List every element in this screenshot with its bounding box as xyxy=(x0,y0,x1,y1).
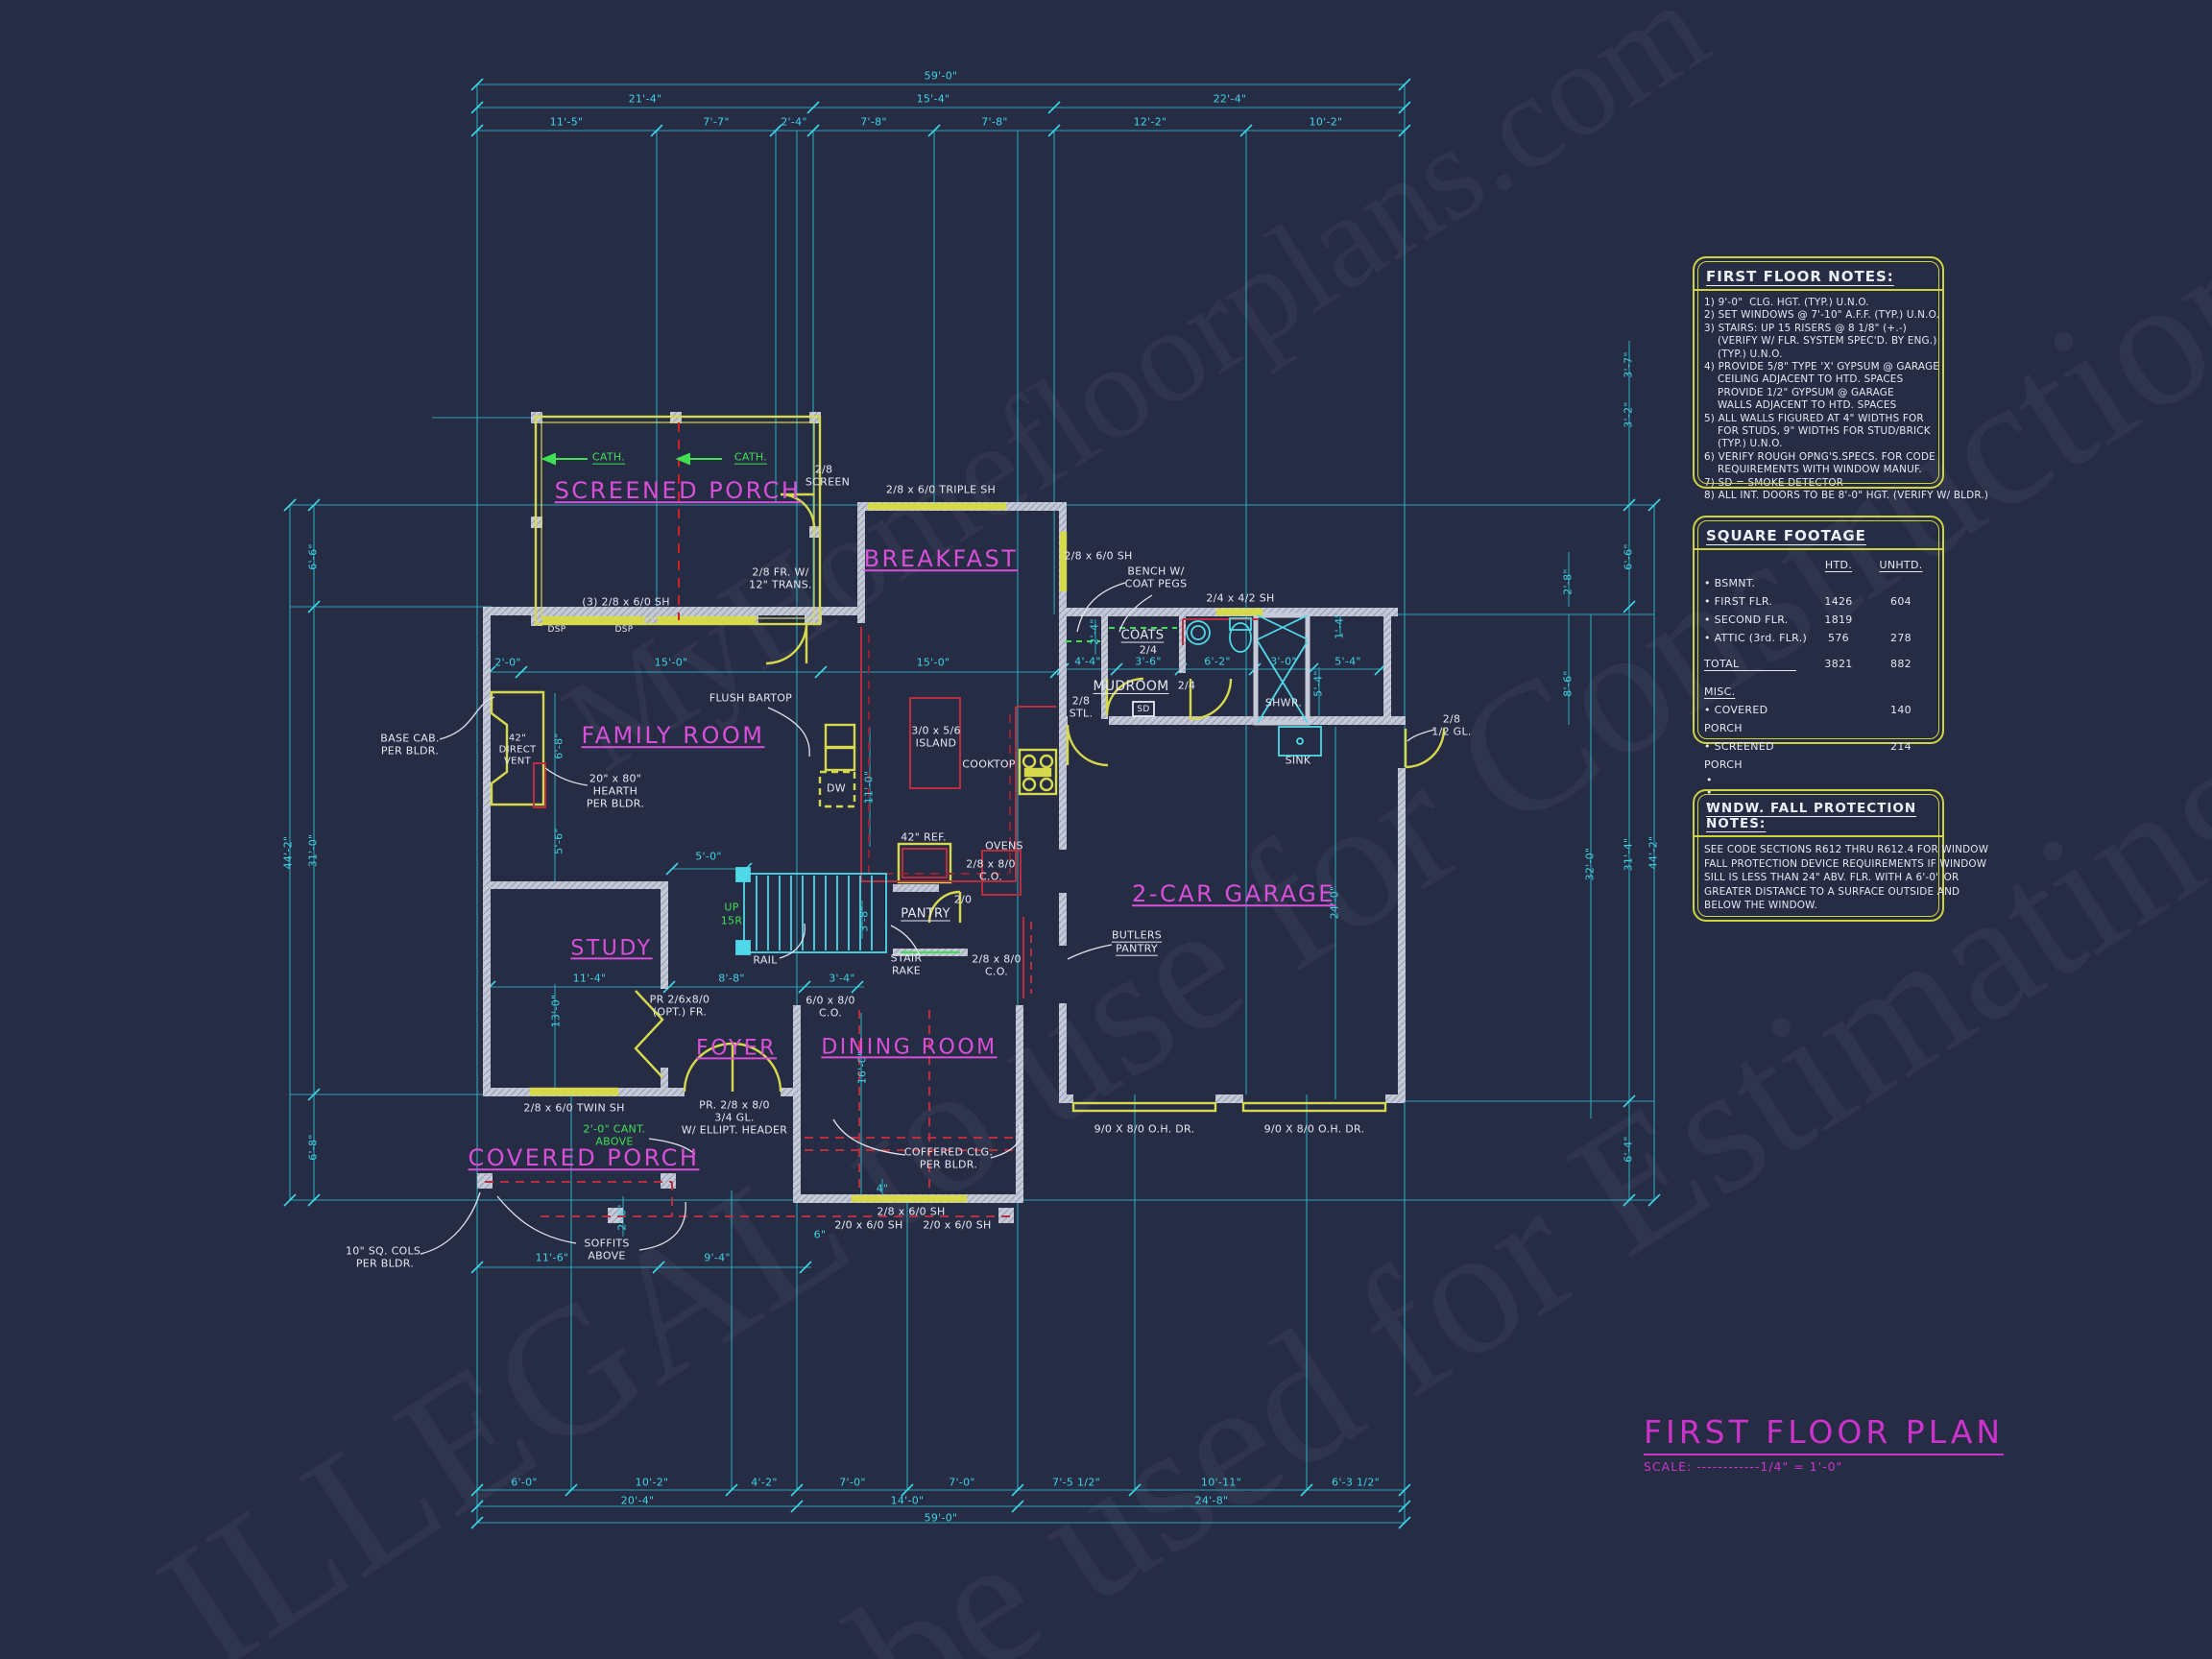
plan-label: 10'-2" xyxy=(636,1478,669,1490)
window-fall-protection-box: WNDW. FALL PROTECTION NOTES: SEE CODE SE… xyxy=(1693,789,1944,922)
sqft-row-name: • ATTIC (3rd. FLR.) xyxy=(1704,629,1808,647)
plan-label: 2/8 x 8/0 xyxy=(972,954,1022,967)
plan-label: 4'-2" xyxy=(751,1478,778,1490)
plan-label: 1/2 GL. xyxy=(1431,727,1471,739)
plan-label: 2'-0" xyxy=(494,658,521,670)
plan-label: 5'-4" xyxy=(1313,670,1326,697)
plan-label: 1'-4" xyxy=(1334,613,1347,639)
plan-label: STL. xyxy=(1070,709,1094,721)
plan-label: BENCH W/ xyxy=(1127,566,1184,579)
plan-label: 2/4 x 4/2 SH xyxy=(1206,593,1274,606)
plan-label: 15'-0" xyxy=(917,658,950,670)
sqft-row-name: • SCREENED PORCH xyxy=(1704,737,1808,774)
plan-label: 2/8 FR. W/ xyxy=(752,567,808,580)
plan-label: ABOVE xyxy=(588,1251,625,1263)
plan-label: 22'-4" xyxy=(1214,94,1247,107)
plan-label: 2'-4" xyxy=(781,117,807,130)
sqft-row-name: • BSMNT. xyxy=(1704,574,1808,592)
plan-label: 2/8 x 6/0 TRIPLE SH xyxy=(886,485,996,497)
room-label-breakfast: BREAKFAST xyxy=(864,546,1019,573)
plan-label: 4" xyxy=(877,1184,889,1196)
plan-label: CATH. xyxy=(734,452,767,465)
plan-label: 10" SQ. COLS. xyxy=(346,1246,424,1259)
plan-label: DW xyxy=(827,783,846,796)
plan-label: SHWR. xyxy=(1265,698,1302,710)
plan-label: VENT xyxy=(504,756,531,767)
sqft-row-unhtd: 214 xyxy=(1869,737,1933,774)
plan-label: 44'-2" xyxy=(283,836,296,870)
square-footage-box: SQUARE FOOTAGE HTD. UNHTD. • BSMNT. • FI… xyxy=(1693,516,1944,744)
plan-label: SOFFITS xyxy=(584,1238,629,1251)
plan-label: PR. 2/8 x 8/0 xyxy=(699,1100,770,1113)
plan-label: 6'-6" xyxy=(1623,543,1636,570)
plan-label: 6'-8" xyxy=(308,1134,321,1161)
plan-label: BASE CAB. xyxy=(380,733,439,746)
plan-label: 3'-7" xyxy=(1623,351,1636,378)
plan-label: 42" xyxy=(509,733,526,744)
plan-label: 6/0 x 8/0 xyxy=(805,996,855,1008)
plan-label: 2/0 x 6/0 SH xyxy=(834,1220,902,1233)
plan-label: MUDROOM xyxy=(1093,679,1168,694)
plan-label: 44'-2" xyxy=(1648,836,1661,870)
room-label-family-room: FAMILY ROOM xyxy=(582,723,765,750)
room-label-garage: 2-CAR GARAGE xyxy=(1132,881,1335,908)
plan-label: PER BLDR. xyxy=(587,799,644,811)
blueprint-canvas: MyHomefloorplans.com ILLEGAL to use for … xyxy=(0,0,2212,1659)
plan-label: 13'-0" xyxy=(551,995,564,1028)
plan-label: C.O. xyxy=(985,967,1008,979)
plan-label: 11'-5" xyxy=(550,117,584,130)
plan-label: PANTRY xyxy=(1116,944,1158,956)
plan-label: 11'-6" xyxy=(536,1253,569,1265)
sqft-col-unhtd: UNHTD. xyxy=(1869,556,1933,574)
first-floor-notes-title: FIRST FLOOR NOTES: xyxy=(1706,268,1931,285)
plan-label: (OPT.) FR. xyxy=(653,1007,707,1020)
plan-label: CATH. xyxy=(592,452,625,465)
plan-label: PR 2/6x8/0 xyxy=(650,995,710,1007)
first-floor-notes-box: FIRST FLOOR NOTES: 1) 9'-0" CLG. HGT. (T… xyxy=(1693,256,1944,489)
plan-label: 2/8 xyxy=(815,465,833,477)
plan-label: PER BLDR. xyxy=(381,746,439,758)
plan-label: COOKTOP xyxy=(962,759,1015,772)
sqft-row: • FIRST FLR. 1426 604 xyxy=(1704,592,1933,611)
plan-label: 12'-2" xyxy=(1134,117,1167,130)
plan-label: 12" TRANS. xyxy=(749,580,812,592)
sqft-misc-row: • COVERED PORCH 140 xyxy=(1704,701,1933,737)
room-label-dining: DINING ROOM xyxy=(821,1035,997,1059)
plan-label: 2/8 x 6/0 TWIN SH xyxy=(523,1103,624,1116)
plan-label: 2/8 x 6/0 SH xyxy=(877,1207,945,1219)
plan-label: SINK xyxy=(1286,756,1311,768)
plan-label: ISLAND xyxy=(916,738,957,751)
room-label-foyer: FOYER xyxy=(696,1036,777,1060)
window-fall-protection-title: WNDW. FALL PROTECTION NOTES: xyxy=(1706,801,1931,831)
plan-label: 59'-0" xyxy=(925,71,958,84)
room-label-study: STUDY xyxy=(570,936,652,960)
plan-label: 6'-3 1/2" xyxy=(1332,1478,1380,1490)
plan-label: 11'-4" xyxy=(573,974,607,986)
plan-label: 7'-5 1/2" xyxy=(1052,1478,1100,1490)
sqft-row: • BSMNT. xyxy=(1704,574,1933,592)
plan-label: 32'-0" xyxy=(1585,848,1598,881)
plan-label: 5'-0" xyxy=(695,852,722,864)
divider xyxy=(1695,289,1942,291)
plan-label: 2/8 x 6/0 SH xyxy=(1064,551,1132,564)
divider xyxy=(1695,835,1942,837)
sqft-row-name: • FIRST FLR. xyxy=(1704,592,1808,611)
plan-label: C.O. xyxy=(979,872,1002,884)
plan-label: 59'-0" xyxy=(925,1513,958,1526)
plan-label: 31'-4" xyxy=(1623,838,1636,872)
plan-label: 7'-8" xyxy=(860,117,887,130)
sqft-row-unhtd xyxy=(1869,574,1933,592)
sqft-total-label: TOTAL xyxy=(1704,658,1796,671)
room-label-screened-porch: SCREENED PORCH xyxy=(555,478,802,505)
plan-label: 20" x 80" xyxy=(589,774,641,786)
plan-label: 5'-6" xyxy=(554,828,566,854)
casework-lines xyxy=(485,422,1258,1216)
room-label-covered-porch: COVERED PORCH xyxy=(469,1145,700,1172)
plan-label: 2'-8" xyxy=(1563,568,1575,595)
sqft-header-row: HTD. UNHTD. xyxy=(1704,556,1933,574)
plan-label: W/ ELLIPT. HEADER xyxy=(682,1125,787,1138)
sqft-total-row: TOTAL 3821 882 xyxy=(1704,655,1933,673)
plan-label: 6" xyxy=(814,1230,827,1242)
plan-label: 14'-0" xyxy=(891,1496,925,1508)
plan-label: 2/0 xyxy=(954,895,973,907)
plan-label: DSP xyxy=(615,625,634,635)
plan-label: C.O. xyxy=(819,1008,842,1021)
plan-label: PER BLDR. xyxy=(356,1259,414,1271)
plan-label: 9/0 X 8/0 O.H. DR. xyxy=(1264,1124,1365,1137)
plan-label: 10'-11" xyxy=(1201,1478,1241,1490)
plan-label: 15'-4" xyxy=(917,94,950,107)
plan-label: OVENS xyxy=(985,841,1023,854)
plan-label: DIRECT xyxy=(499,744,537,756)
sqft-row-htd: 1426 xyxy=(1808,592,1869,611)
sqft-row-unhtd: 604 xyxy=(1869,592,1933,611)
plan-label: RAKE xyxy=(892,966,921,978)
plan-label: 24'-8" xyxy=(1195,1496,1229,1508)
sqft-misc-row: • SCREENED PORCH 214 xyxy=(1704,737,1933,774)
plan-label: 11'-0" xyxy=(864,771,877,805)
plan-label: SD xyxy=(1137,705,1149,714)
plan-label: 5'-4" xyxy=(1334,657,1361,669)
plan-label: DSP xyxy=(548,625,566,635)
plan-label: BUTLERS xyxy=(1112,930,1162,943)
sqft-total-htd: 3821 xyxy=(1808,655,1869,673)
plan-label: 2/8 x 8/0 xyxy=(966,859,1016,872)
plan-label: HEARTH xyxy=(593,786,637,799)
first-floor-notes-body: 1) 9'-0" CLG. HGT. (TYP.) U.N.O. 2) SET … xyxy=(1704,297,1933,503)
drawing-title: FIRST FLOOR PLAN xyxy=(1644,1413,2004,1455)
plan-label: 3'-2" xyxy=(1623,401,1636,428)
sqft-row-htd: 576 xyxy=(1808,629,1869,647)
plan-label: 10'-2" xyxy=(1310,117,1343,130)
plan-label: 2'-0" CANT. xyxy=(583,1124,645,1137)
plan-label: 3/4 GL. xyxy=(714,1113,754,1125)
divider xyxy=(1695,548,1942,550)
plan-label: STAIR xyxy=(891,953,923,966)
plan-label: 9'-4" xyxy=(704,1253,731,1265)
plan-label: 6'-8" xyxy=(554,733,566,759)
plan-label: 2/8 xyxy=(1443,714,1461,727)
plan-label: 2'-4" xyxy=(1090,618,1102,645)
plan-label: 4'-4" xyxy=(1074,657,1101,669)
plan-label: 3'-4" xyxy=(829,974,855,986)
plan-label: (3) 2/8 x 6/0 SH xyxy=(582,597,670,610)
plan-label: 7'-0" xyxy=(949,1478,975,1490)
plan-label: 2'-0" xyxy=(617,1204,630,1231)
plan-label: PANTRY xyxy=(901,908,950,923)
plan-label: 2/4 xyxy=(1178,681,1196,693)
sqft-row: • SECOND FLR. 1819 xyxy=(1704,611,1933,629)
sqft-row-name: • SECOND FLR. xyxy=(1704,611,1808,629)
square-footage-title: SQUARE FOOTAGE xyxy=(1706,527,1931,544)
plan-label: RAIL xyxy=(753,955,777,968)
plan-label: 7'-8" xyxy=(981,117,1008,130)
plan-label: 6'-2" xyxy=(1204,657,1231,669)
plan-label: 15R xyxy=(721,916,743,928)
sqft-row-unhtd xyxy=(1869,611,1933,629)
sqft-row-unhtd: 278 xyxy=(1869,629,1933,647)
plan-label: 7'-7" xyxy=(703,117,730,130)
plan-label: PER BLDR. xyxy=(920,1160,977,1172)
plan-label: 9/0 X 8/0 O.H. DR. xyxy=(1094,1124,1195,1137)
window-fall-protection-body: SEE CODE SECTIONS R612 THRU R612.4 FOR W… xyxy=(1704,843,1933,913)
sqft-row: • ATTIC (3rd. FLR.) 576 278 xyxy=(1704,629,1933,647)
title-block: FIRST FLOOR PLAN SCALE: ------------1/4"… xyxy=(1644,1413,2004,1474)
plan-label: 20'-4" xyxy=(621,1496,655,1508)
plan-label: 2/8 xyxy=(1072,696,1091,709)
plan-label: 3'-8" xyxy=(859,905,872,932)
sqft-misc-label: MISC. xyxy=(1704,683,1933,701)
plan-label: FLUSH BARTOP xyxy=(709,693,792,706)
plan-label: 42" REF. xyxy=(901,832,947,845)
plan-label: 31'-0" xyxy=(308,834,321,868)
plan-label: 6'-4" xyxy=(1623,1136,1636,1163)
plan-label: 2/0 x 6/0 SH xyxy=(923,1220,991,1233)
plan-label: UP xyxy=(724,902,738,915)
plan-label: 15'-0" xyxy=(655,658,688,670)
plan-label: 24'-0" xyxy=(1330,886,1342,920)
sqft-col-htd: HTD. xyxy=(1808,556,1869,574)
plan-label: COAT PEGS xyxy=(1125,579,1188,591)
plan-label: COATS xyxy=(1121,630,1165,644)
plan-label: 6'-0" xyxy=(511,1478,538,1490)
plan-label: 8'-8" xyxy=(718,974,745,986)
plan-label: SCREEN xyxy=(805,477,850,490)
plan-label: 6'-6" xyxy=(308,543,321,570)
sqft-row-htd xyxy=(1808,574,1869,592)
sqft-row-unhtd: 140 xyxy=(1869,701,1933,737)
drawing-scale: SCALE: ------------1/4" = 1'-0" xyxy=(1644,1459,2004,1474)
sqft-row-name: • COVERED PORCH xyxy=(1704,701,1808,737)
plan-label: 3'-6" xyxy=(1135,657,1162,669)
sqft-total-unhtd: 882 xyxy=(1869,655,1933,673)
sqft-row-htd: 1819 xyxy=(1808,611,1869,629)
plan-label: 3/0 x 5/6 xyxy=(911,726,961,738)
plan-label: 21'-4" xyxy=(629,94,662,107)
plan-label: 7'-0" xyxy=(839,1478,866,1490)
plan-label: 8'-6" xyxy=(1563,670,1575,697)
plan-label: 3'-0" xyxy=(1270,657,1297,669)
plan-label: COFFERED CLG. xyxy=(904,1147,993,1160)
